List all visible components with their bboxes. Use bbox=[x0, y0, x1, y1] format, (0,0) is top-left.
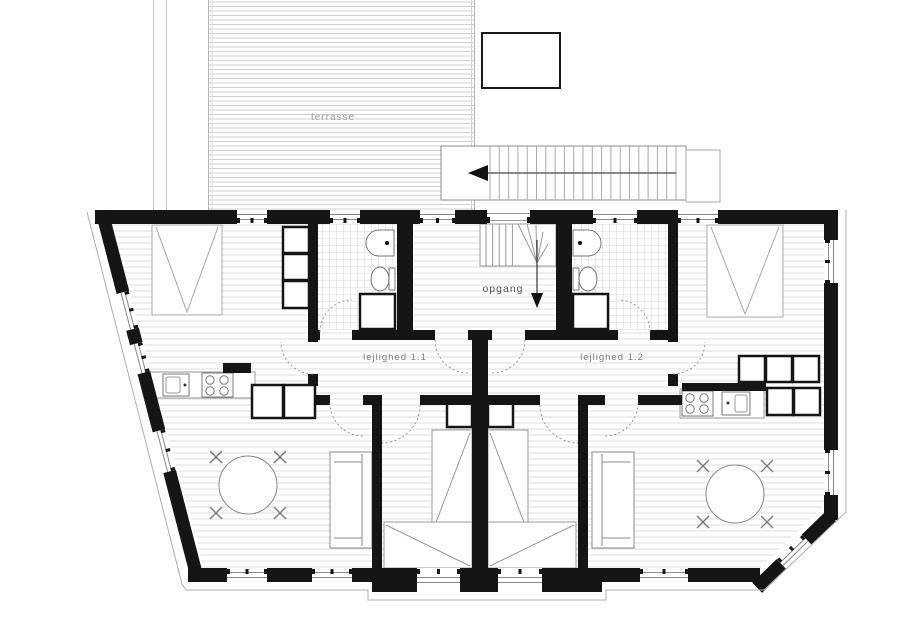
kitchen-sink-1 bbox=[163, 374, 189, 396]
closet-1 bbox=[447, 402, 472, 427]
stove-icon-2 bbox=[682, 391, 713, 416]
desk-1 bbox=[384, 522, 472, 568]
toilet-icon-1 bbox=[371, 267, 395, 291]
closet-2 bbox=[488, 402, 513, 427]
terrace-label: terrasse bbox=[311, 112, 355, 123]
entrance-door bbox=[487, 214, 530, 224]
double-bed-2 bbox=[707, 225, 783, 317]
dining-table-1 bbox=[219, 456, 277, 514]
apartment-2-label: lejlighed 1.2 bbox=[580, 352, 644, 363]
stair-hall-label: opgang bbox=[482, 283, 523, 295]
tall-cabinet-1 bbox=[252, 385, 315, 418]
bathroom-sink-2 bbox=[573, 230, 601, 256]
wardrobe-1 bbox=[283, 227, 309, 308]
sofa-2 bbox=[592, 452, 634, 548]
dining-table-2 bbox=[706, 465, 764, 523]
desk-2 bbox=[488, 522, 576, 568]
toilet-icon-2 bbox=[573, 267, 597, 291]
single-bed-2 bbox=[488, 430, 528, 528]
terrace: terrasse bbox=[154, 0, 476, 210]
shower-2 bbox=[573, 294, 608, 329]
apartment-1-label: lejlighed 1.1 bbox=[363, 352, 427, 363]
shower-1 bbox=[360, 294, 395, 329]
sofa-1 bbox=[330, 452, 372, 548]
stove-icon-1 bbox=[202, 373, 233, 397]
stair-landing bbox=[686, 150, 720, 202]
roof-box bbox=[482, 33, 560, 88]
floor-plan-canvas: terrasse bbox=[0, 0, 900, 640]
exterior-staircase bbox=[441, 146, 720, 202]
single-bed-1 bbox=[432, 430, 472, 528]
terrace-decking bbox=[208, 0, 475, 210]
bathroom-sink-1 bbox=[366, 230, 394, 256]
floor-plan: terrasse bbox=[0, 0, 900, 640]
kitchen-sink-2 bbox=[722, 392, 750, 415]
kitchen-2 bbox=[680, 389, 764, 418]
double-bed-1 bbox=[152, 225, 222, 315]
